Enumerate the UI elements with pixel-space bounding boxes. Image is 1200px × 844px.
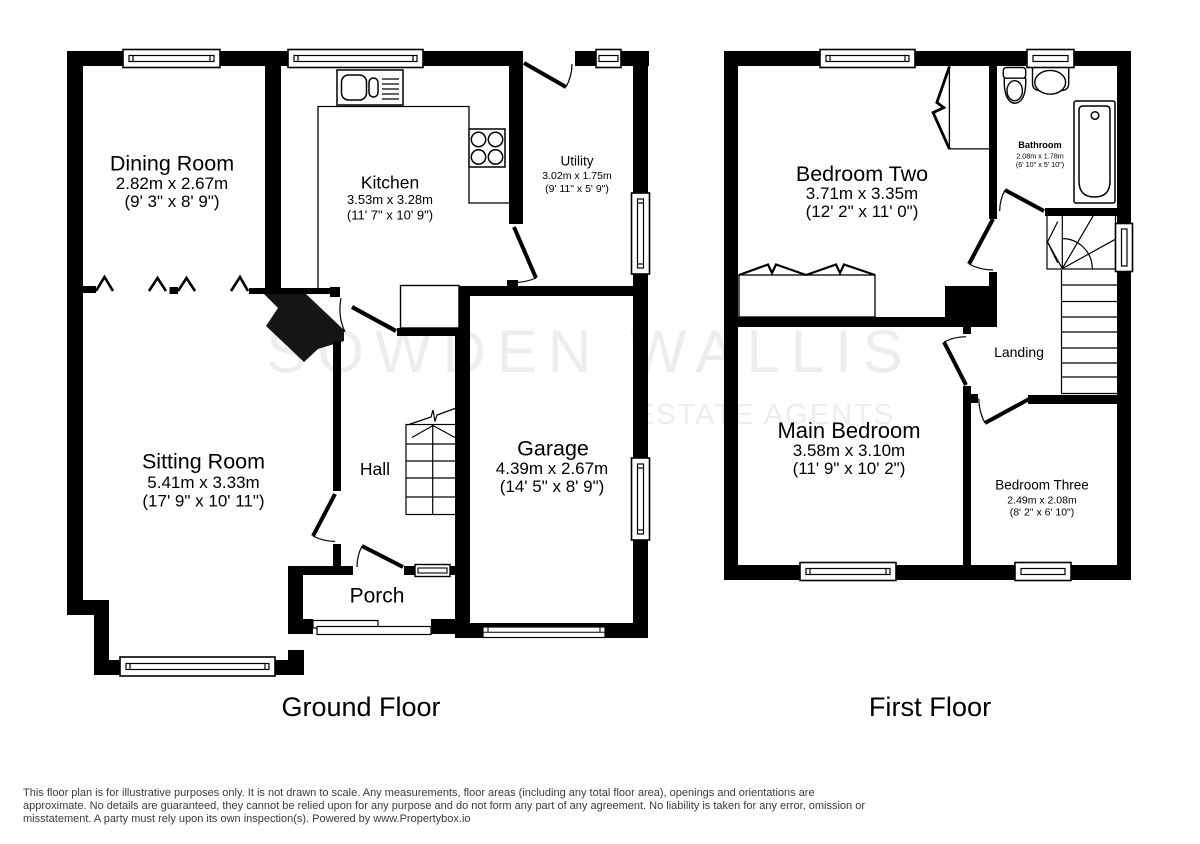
svg-text:SOWDEN WALLIS: SOWDEN WALLIS — [266, 318, 914, 385]
svg-text:3.58m x 3.10m: 3.58m x 3.10m — [793, 441, 905, 460]
svg-text:Main Bedroom: Main Bedroom — [777, 418, 920, 443]
svg-text:First Floor: First Floor — [869, 691, 991, 722]
svg-text:Hall: Hall — [360, 459, 390, 479]
svg-text:Kitchen: Kitchen — [361, 173, 419, 193]
svg-text:5.41m x 3.33m: 5.41m x 3.33m — [147, 473, 259, 492]
svg-text:(14' 5" x 8' 9"): (14' 5" x 8' 9") — [500, 477, 605, 496]
svg-text:2.82m x 2.67m: 2.82m x 2.67m — [116, 174, 228, 193]
svg-text:(9' 11" x 5' 9"): (9' 11" x 5' 9") — [545, 183, 609, 195]
svg-text:misstatement. A party must rel: misstatement. A party must rely upon its… — [23, 813, 471, 825]
svg-text:Sitting Room: Sitting Room — [142, 450, 265, 474]
svg-text:(11' 9" x 10' 2"): (11' 9" x 10' 2") — [793, 459, 906, 478]
svg-text:Bedroom Three: Bedroom Three — [995, 478, 1089, 493]
svg-text:Bathroom: Bathroom — [1018, 140, 1061, 150]
svg-text:(17' 9" x 10' 11"): (17' 9" x 10' 11") — [142, 492, 264, 511]
svg-text:Porch: Porch — [350, 585, 405, 608]
svg-text:(8' 2" x 6' 10"): (8' 2" x 6' 10") — [1010, 507, 1075, 519]
svg-text:Utility: Utility — [561, 154, 594, 169]
svg-text:approximate. No details are gu: approximate. No details are guaranteed, … — [23, 800, 865, 812]
svg-text:Dining Room: Dining Room — [110, 152, 234, 176]
svg-text:Landing: Landing — [994, 344, 1044, 360]
svg-text:Bedroom Two: Bedroom Two — [796, 162, 928, 186]
svg-text:4.39m x 2.67m: 4.39m x 2.67m — [496, 459, 608, 478]
svg-text:3.71m x 3.35m: 3.71m x 3.35m — [806, 184, 918, 203]
svg-text:(11' 7" x 10' 9"): (11' 7" x 10' 9") — [347, 208, 433, 223]
svg-text:This floor plan is for illustr: This floor plan is for illustrative purp… — [23, 787, 815, 799]
svg-text:(12' 2" x 11' 0"): (12' 2" x 11' 0") — [806, 202, 919, 221]
svg-text:3.02m x 1.75m: 3.02m x 1.75m — [542, 170, 612, 182]
svg-text:Ground Floor: Ground Floor — [281, 692, 440, 722]
svg-text:(9' 3" x 8' 9"): (9' 3" x 8' 9") — [124, 192, 219, 211]
svg-text:2.49m x 2.08m: 2.49m x 2.08m — [1007, 495, 1077, 507]
svg-text:3.53m x 3.28m: 3.53m x 3.28m — [347, 192, 433, 207]
svg-text:(6' 10" x 5' 10"): (6' 10" x 5' 10") — [1016, 160, 1064, 169]
svg-text:Garage: Garage — [517, 437, 589, 461]
